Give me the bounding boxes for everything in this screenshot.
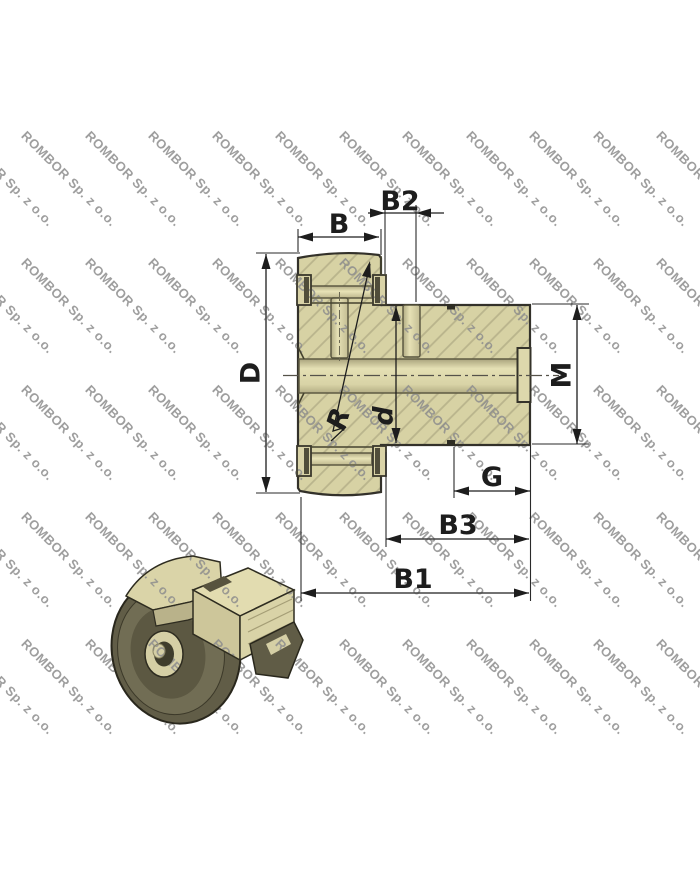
dim-b3: B3 bbox=[386, 452, 529, 547]
technical-drawing: B B2 D bbox=[0, 0, 700, 869]
bore-pin bbox=[153, 644, 165, 658]
dim-g: G bbox=[454, 447, 530, 498]
seal-top-right bbox=[373, 275, 386, 305]
dim-label-b3: B3 bbox=[438, 510, 477, 541]
dim-label-b2: B2 bbox=[380, 186, 419, 217]
dim-label-b1: B1 bbox=[393, 564, 432, 595]
dim-label-m: M bbox=[547, 362, 578, 389]
thread-notch-bottom bbox=[447, 440, 455, 446]
dim-label-b: B bbox=[329, 209, 350, 240]
needle-bearing-top bbox=[306, 286, 376, 298]
dim-label-g: G bbox=[481, 462, 503, 493]
seal-bottom-left bbox=[297, 446, 311, 476]
page: B B2 D bbox=[0, 0, 700, 869]
section-view bbox=[283, 253, 559, 495]
thread-notch-top bbox=[447, 304, 455, 310]
dim-label-d-outer: D bbox=[236, 362, 267, 384]
3d-preview bbox=[98, 556, 303, 736]
dim-m-thread: M bbox=[532, 304, 589, 444]
dim-d-outer: D bbox=[236, 253, 301, 493]
grease-hole-right bbox=[403, 305, 420, 357]
needle-bearing-bottom bbox=[306, 453, 376, 465]
seal-top-left bbox=[297, 275, 311, 305]
dim-b: B bbox=[298, 209, 381, 255]
seal-bottom-right bbox=[373, 446, 386, 476]
dim-label-d-inner: d bbox=[369, 406, 400, 426]
